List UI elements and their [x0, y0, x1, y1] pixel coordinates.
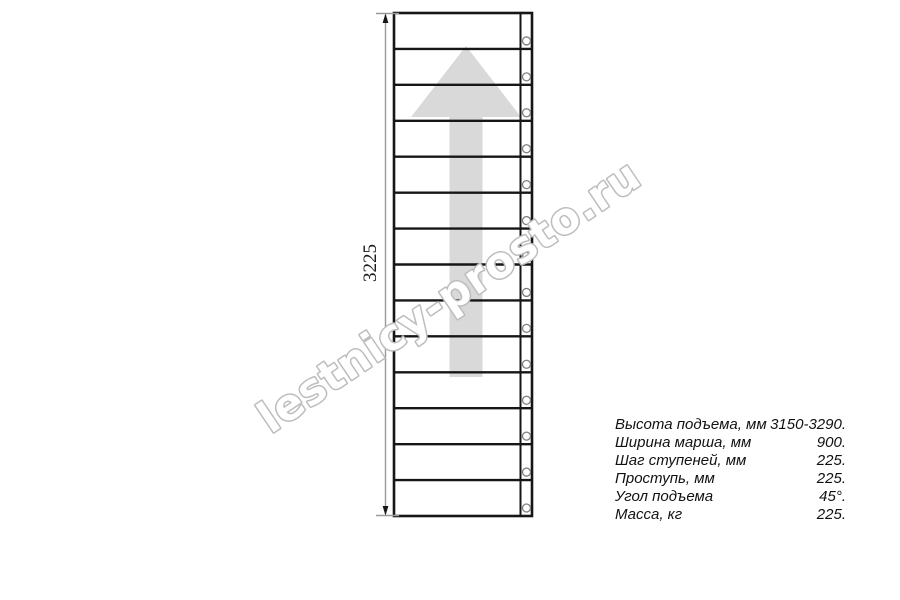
fastener-hole-icon: [523, 396, 531, 404]
spec-row: Масса, кг225.: [615, 506, 846, 524]
spec-label: Масса, кг: [615, 506, 682, 524]
fastener-hole-icon: [523, 37, 531, 45]
spec-table: Высота подъема, мм3150-3290.Ширина марша…: [615, 416, 846, 524]
fastener-hole-icon: [523, 145, 531, 153]
spec-row: Ширина марша, мм900.: [615, 434, 846, 452]
spec-row: Проступь, мм225.: [615, 470, 846, 488]
spec-label: Угол подъема: [615, 488, 713, 506]
spec-value: 3150-3290.: [770, 416, 846, 434]
fastener-hole-icon: [523, 468, 531, 476]
fastener-hole-icon: [523, 73, 531, 81]
spec-row: Шаг ступеней, мм225.: [615, 452, 846, 470]
dimension-arrowhead-up-icon: [383, 14, 389, 24]
spec-label: Проступь, мм: [615, 470, 715, 488]
fastener-hole-icon: [523, 288, 531, 296]
spec-value: 225.: [817, 452, 846, 470]
spec-label: Ширина марша, мм: [615, 434, 751, 452]
fastener-hole-icon: [523, 181, 531, 189]
fastener-hole-icon: [523, 360, 531, 368]
spec-label: Высота подъема, мм: [615, 416, 767, 434]
fastener-hole-icon: [523, 109, 531, 117]
dimension-arrowhead-down-icon: [383, 506, 389, 516]
spec-value: 900.: [817, 434, 846, 452]
spec-value: 225.: [817, 470, 846, 488]
fastener-hole-icon: [523, 324, 531, 332]
fastener-hole-icon: [523, 504, 531, 512]
spec-row: Угол подъема45°.: [615, 488, 846, 506]
spec-row: Высота подъема, мм3150-3290.: [615, 416, 846, 434]
spec-value: 225.: [817, 506, 846, 524]
spec-value: 45°.: [819, 488, 846, 506]
fastener-hole-icon: [523, 432, 531, 440]
dimension-label: 3225: [360, 244, 381, 282]
technical-drawing-canvas: 3225 lestnicy-prosto.ru Высота подъема, …: [0, 0, 900, 600]
spec-label: Шаг ступеней, мм: [615, 452, 746, 470]
